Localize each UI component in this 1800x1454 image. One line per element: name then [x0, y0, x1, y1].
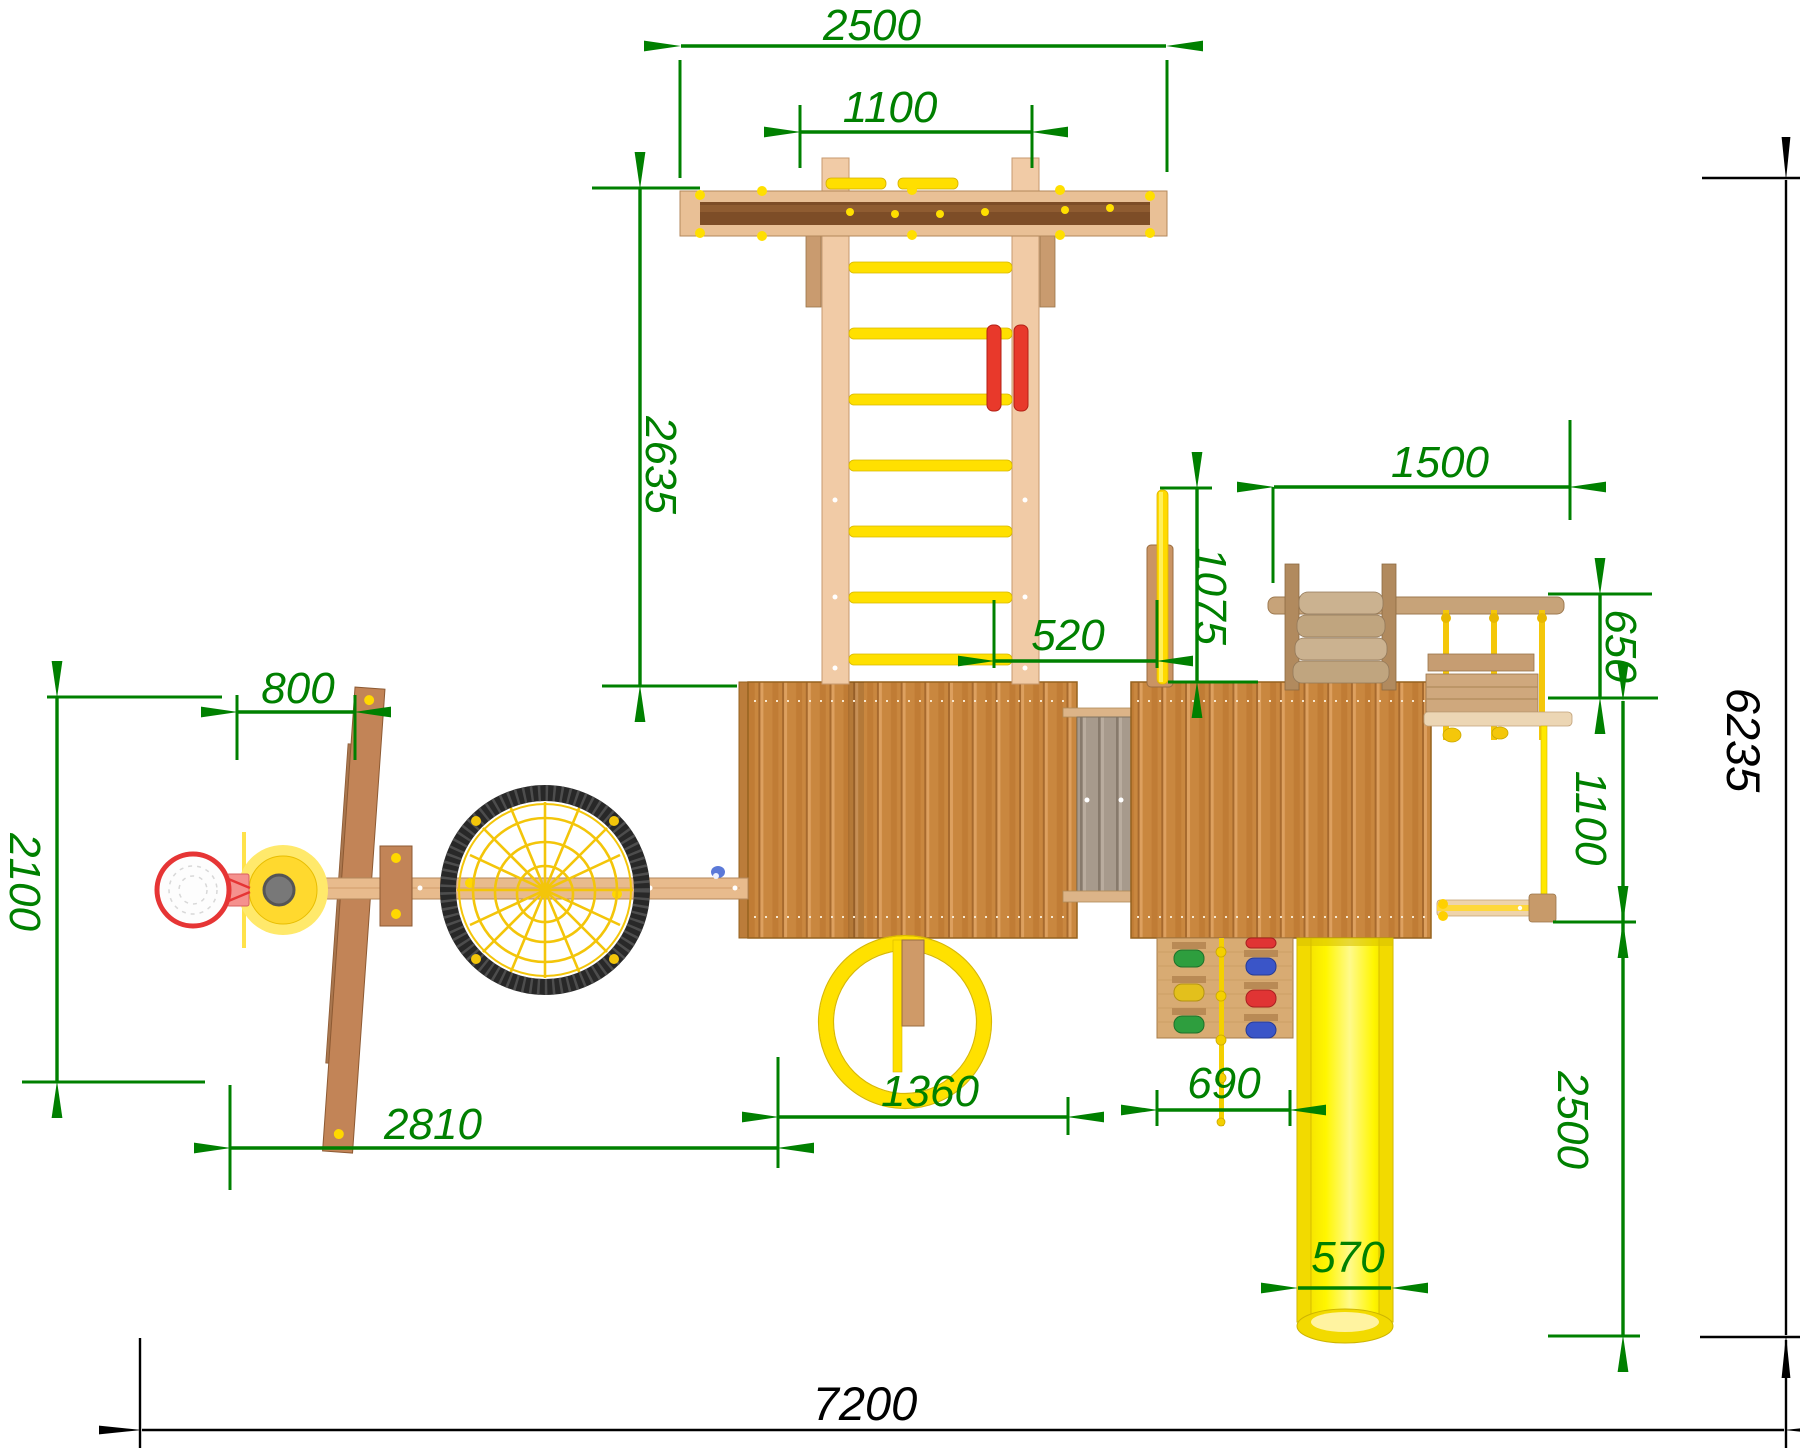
- nest-swing: [448, 793, 642, 987]
- dim-total-depth-6235: 6235: [1700, 178, 1800, 1337]
- dim-swing-zone-2810: 2810: [230, 1085, 777, 1190]
- dim-basketball-800: 800: [237, 664, 355, 760]
- basketball-hoop: [157, 832, 328, 948]
- dim-label: 2500: [1548, 1070, 1597, 1169]
- dim-label: 570: [1311, 1233, 1385, 1282]
- ladder-rungs: [849, 262, 1012, 665]
- dim-label: 1100: [1566, 771, 1615, 866]
- dim-label: 2635: [636, 415, 685, 514]
- dim-label: 520: [1031, 611, 1105, 660]
- swing-seat: [1437, 894, 1556, 922]
- dim-ladder-1100: 1100: [800, 83, 1032, 168]
- dim-slide-depth-2500: 2500: [1548, 923, 1640, 1336]
- dim-label: 1075: [1186, 547, 1235, 645]
- right-tower-roof: [1131, 682, 1431, 938]
- dim-rope-ladder-650: 650: [1548, 594, 1658, 698]
- dim-label: 2810: [383, 1100, 482, 1149]
- rope-ladder: [1424, 610, 1572, 906]
- dim-label: 690: [1187, 1059, 1261, 1108]
- dim-label: 650: [1596, 609, 1645, 683]
- dim-swing-station-1100: 1100: [1553, 701, 1636, 922]
- dim-label: 1360: [881, 1067, 979, 1116]
- dim-label: 2500: [822, 1, 921, 50]
- dim-ring-1360: 1360: [778, 1057, 1068, 1168]
- dim-fireman-pole-1075: 1075: [1160, 488, 1258, 682]
- dim-label: 1100: [843, 83, 938, 132]
- fireman-pole: [1147, 490, 1173, 687]
- swing-beam-top: [680, 178, 1167, 241]
- red-grip: [987, 325, 1001, 411]
- dim-label: 7200: [813, 1377, 918, 1430]
- left-tower-roof: [739, 682, 1077, 938]
- dim-label: 2100: [0, 832, 49, 931]
- dim-slide-width-570: 570: [1298, 1233, 1391, 1288]
- red-grip: [1014, 325, 1028, 411]
- dim-label: 6235: [1717, 688, 1770, 793]
- swing-frame-block: [380, 846, 412, 926]
- gym-ladder: [806, 158, 1055, 684]
- dim-right-module-1500: 1500: [1273, 420, 1570, 583]
- dim-label: 800: [261, 664, 335, 713]
- playground: [157, 158, 1572, 1343]
- drawing-canvas: 2500 1100 2635 1500 1075 520: [0, 0, 1800, 1454]
- drawing-sheet: 2500 1100 2635 1500 1075 520: [0, 0, 1800, 1454]
- dim-ladder-length-2635: 2635: [592, 188, 737, 686]
- swing-frame: [320, 687, 385, 1153]
- climbing-rope: [1541, 726, 1547, 906]
- hoop-net: [160, 857, 226, 923]
- dim-label: 1500: [1391, 438, 1489, 487]
- slide: [1297, 938, 1393, 1343]
- dim-total-length-7200: 7200: [140, 1338, 1786, 1448]
